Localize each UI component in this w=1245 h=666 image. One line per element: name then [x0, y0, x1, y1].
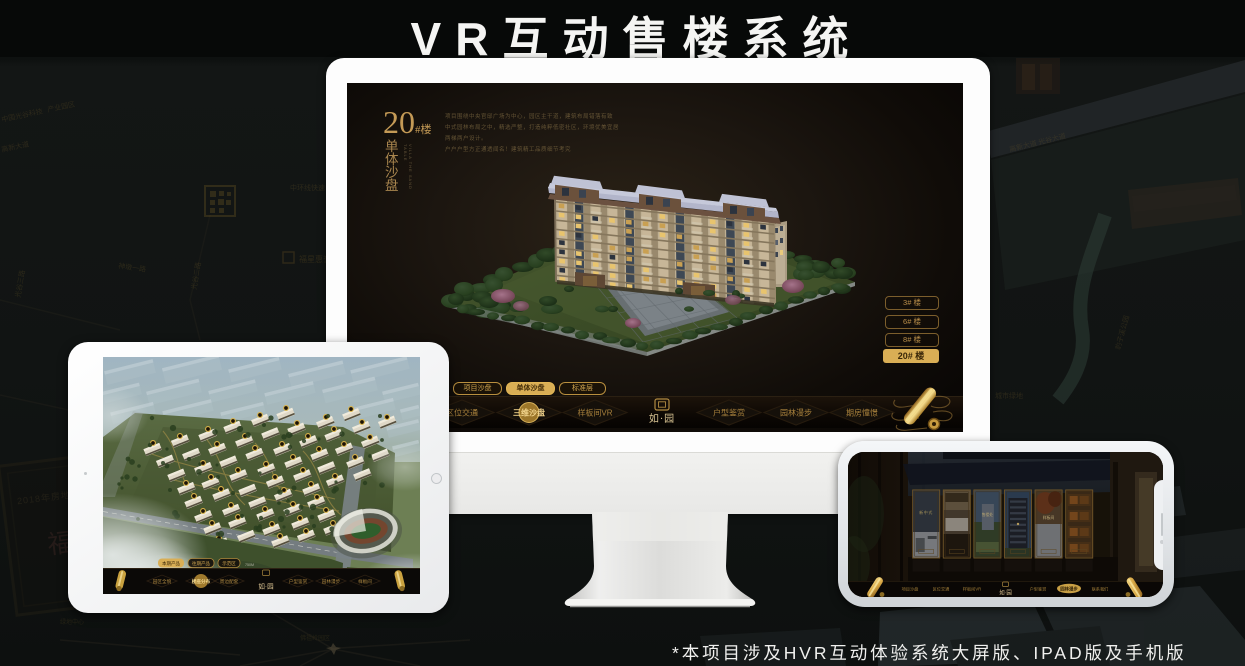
svg-text:本期产品: 本期产品	[162, 560, 180, 567]
svg-text:如·园: 如·园	[999, 589, 1012, 597]
svg-text:园林漫步: 园林漫步	[322, 578, 341, 585]
svg-text:园林漫步: 园林漫步	[780, 408, 812, 418]
svg-text:样板间: 样板间	[358, 578, 372, 585]
svg-text:期房憧憬: 期房憧憬	[846, 408, 878, 418]
svg-text:绿地中心: 绿地中心	[60, 618, 84, 626]
svg-text:光谷二路: 光谷二路	[189, 261, 203, 290]
svg-text:项目沙盘: 项目沙盘	[902, 586, 919, 593]
svg-text:高新大道: 高新大道	[1, 139, 30, 154]
svg-text:区位交通: 区位交通	[933, 586, 951, 593]
svg-text:园区全貌: 园区全貌	[153, 578, 172, 585]
svg-text:光谷三路: 光谷三路	[13, 269, 27, 298]
svg-text:楼座分布: 楼座分布	[192, 578, 211, 585]
svg-text:如·园: 如·园	[258, 582, 273, 591]
svg-text:如·园: 如·园	[649, 412, 675, 425]
svg-text:园林漫步: 园林漫步	[1060, 586, 1078, 593]
svg-text:示范区: 示范区	[222, 560, 236, 567]
svg-text:佛祖岭园区: 佛祖岭园区	[300, 634, 330, 642]
svg-text:样板间VR: 样板间VR	[577, 408, 612, 418]
svg-text:户型鉴赏: 户型鉴赏	[1030, 586, 1047, 593]
svg-text:户型鉴赏: 户型鉴赏	[289, 578, 308, 585]
svg-text:周边配套: 周边配套	[220, 578, 239, 585]
svg-text:中环线快速: 中环线快速	[290, 183, 325, 192]
svg-text:神墩一路: 神墩一路	[118, 261, 147, 274]
svg-text:豹子溪公园: 豹子溪公园	[1113, 314, 1131, 350]
svg-text:产业园区: 产业园区	[47, 99, 76, 114]
svg-text:区位交通: 区位交通	[446, 408, 478, 418]
svg-text:中国光谷科技: 中国光谷科技	[1, 106, 44, 124]
svg-text:三维沙盘: 三维沙盘	[513, 408, 545, 418]
svg-text:750M: 750M	[245, 563, 254, 567]
svg-text:往期产品: 往期产品	[192, 560, 210, 567]
svg-text:联系我们: 联系我们	[1092, 586, 1109, 593]
svg-text:户型鉴赏: 户型鉴赏	[713, 408, 745, 418]
svg-text:样板间VR: 样板间VR	[963, 586, 981, 593]
svg-text:城市绿地: 城市绿地	[995, 391, 1023, 400]
